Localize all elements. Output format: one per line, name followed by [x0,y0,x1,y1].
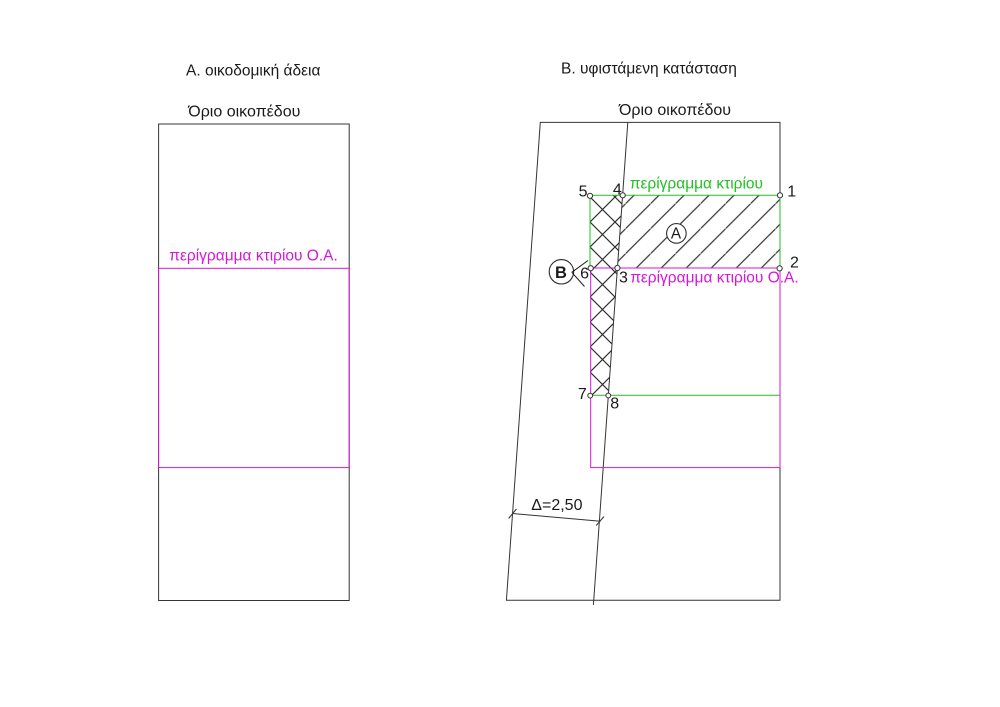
svg-text:Β: Β [555,264,567,282]
svg-text:8: 8 [610,396,619,413]
svg-text:περίγραμμα κτιρίου Ο.Α.: περίγραμμα κτιρίου Ο.Α. [169,248,338,265]
svg-text:περίγραμμα κτιρίου Ο.Α.: περίγραμμα κτιρίου Ο.Α. [630,270,799,287]
svg-text:Όριο οικοπέδου: Όριο οικοπέδου [187,104,300,121]
svg-text:3: 3 [619,270,628,287]
svg-text:Δ=2,50: Δ=2,50 [531,497,582,514]
svg-text:περίγραμμα κτιρίου: περίγραμμα κτιρίου [630,175,763,192]
svg-text:Όριο οικοπέδου: Όριο οικοπέδου [618,102,731,119]
svg-text:Β. υφιστάμενη κατάσταση: Β. υφιστάμενη κατάσταση [561,61,737,78]
svg-text:2: 2 [790,255,799,272]
svg-text:5: 5 [579,184,588,201]
svg-text:7: 7 [578,386,587,403]
svg-text:Α. οικοδομική άδεια: Α. οικοδομική άδεια [186,63,320,80]
svg-text:4: 4 [613,182,622,199]
svg-text:6: 6 [580,266,589,283]
svg-text:1: 1 [787,184,796,201]
svg-text:Α: Α [671,226,682,243]
